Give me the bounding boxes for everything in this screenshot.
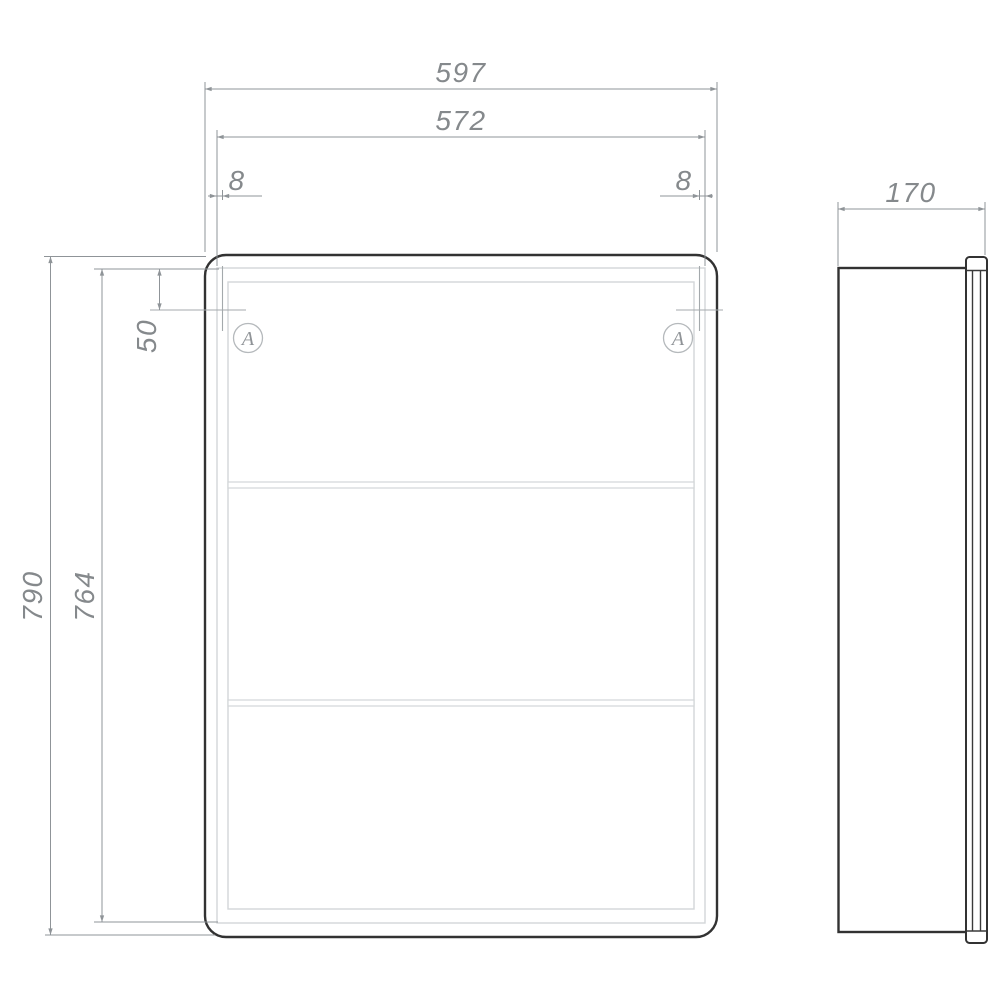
shelf-lower (228, 700, 694, 706)
label-overall-height: 790 (17, 570, 48, 621)
label-depth: 170 (885, 177, 936, 208)
label-door-width: 572 (435, 105, 486, 136)
label-hinge-inset-left: 8 (228, 165, 245, 196)
side-door-outline (966, 257, 987, 943)
label-overall-width: 597 (435, 57, 486, 88)
front-cabinet-outline (205, 255, 717, 937)
side-view (839, 257, 988, 943)
callout-label-right: A (670, 328, 685, 350)
callout-label-left: A (240, 328, 255, 350)
label-door-height: 764 (69, 570, 100, 621)
technical-drawing-canvas: 597 572 8 8 50 790 764 170 A A (0, 0, 1000, 1000)
side-body-outline (839, 268, 967, 932)
front-view (150, 255, 723, 937)
drawing-page: 597 572 8 8 50 790 764 170 A A (0, 0, 1000, 1000)
label-hinge-inset-right: 8 (675, 165, 692, 196)
shelf-upper (228, 482, 694, 488)
label-hinge-top-offset: 50 (131, 319, 162, 353)
